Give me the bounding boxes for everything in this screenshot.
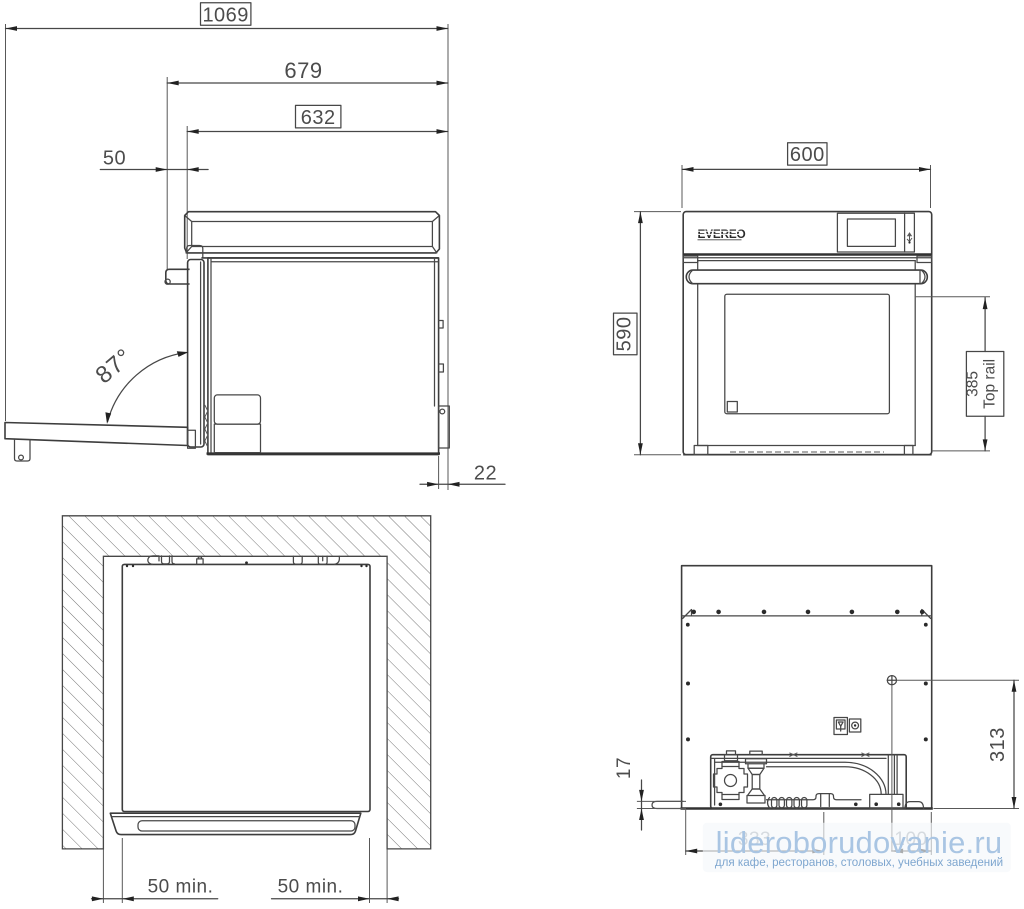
svg-text:679: 679 bbox=[284, 58, 322, 83]
svg-text:1069: 1069 bbox=[202, 4, 249, 26]
svg-text:Top rail: Top rail bbox=[982, 359, 999, 409]
svg-text:50 min.: 50 min. bbox=[278, 877, 344, 898]
svg-text:22: 22 bbox=[474, 463, 497, 485]
svg-text:632: 632 bbox=[301, 107, 336, 129]
svg-text:600: 600 bbox=[790, 144, 825, 166]
svg-text:313: 313 bbox=[987, 727, 1009, 762]
svg-text:385: 385 bbox=[965, 371, 982, 397]
svg-text:50: 50 bbox=[103, 148, 126, 170]
svg-text:lideroborudovanie.ru: lideroborudovanie.ru bbox=[716, 825, 1003, 860]
svg-text:590: 590 bbox=[614, 316, 636, 351]
svg-text:17: 17 bbox=[614, 757, 635, 779]
svg-text:50 min.: 50 min. bbox=[148, 877, 214, 898]
svg-text:для кафе, ресторанов, столовых: для кафе, ресторанов, столовых, учебных … bbox=[715, 856, 1003, 869]
